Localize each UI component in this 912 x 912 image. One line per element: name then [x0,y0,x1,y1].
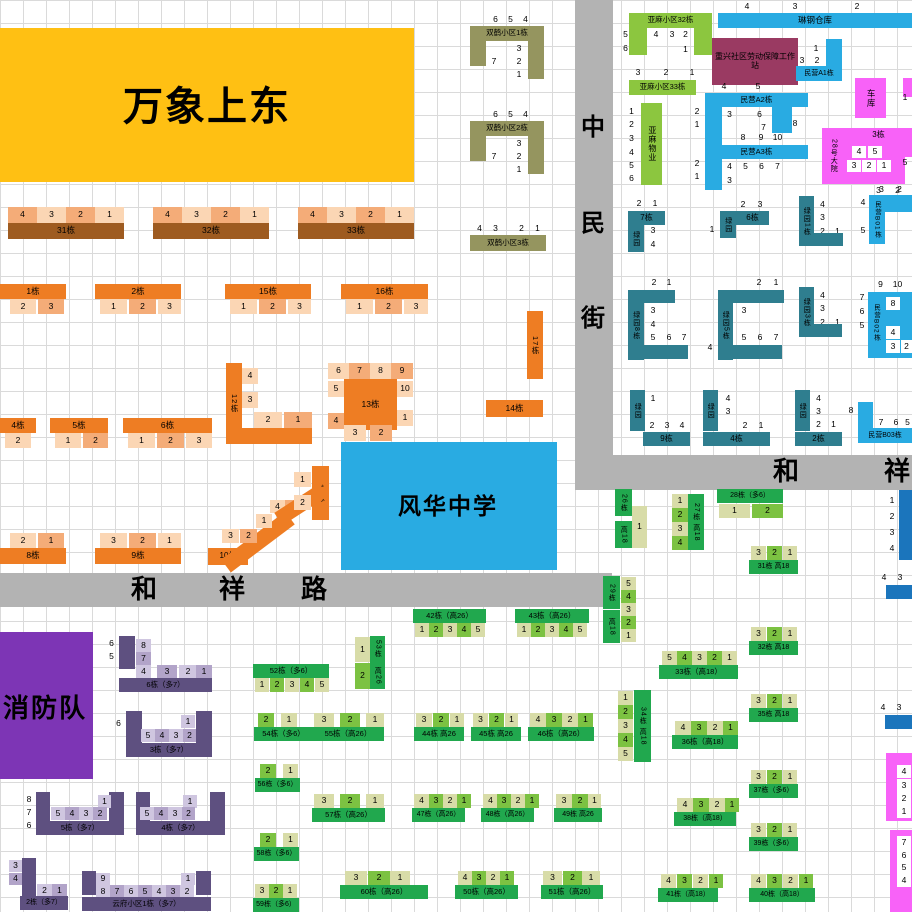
building-yunfu-1-label: 1 [181,873,195,885]
building-purple-5-label: 4 [65,807,79,820]
building-32-label: 3 [182,207,211,223]
building-purple-6-label: 8 [136,639,151,652]
building-lvyuan-9-label: 2 [645,419,659,432]
building-lvyuan-5-shape [733,290,784,303]
building-58-label: 1 [283,833,298,847]
building-yama-32-shape [629,28,647,55]
building-12-label: 2 [254,412,282,428]
building-lvyuan-7-label: 绿园 [628,225,644,252]
building-edge-blue-1-label: 4 [886,543,898,555]
building-purple-5-label: 8 [23,794,35,806]
building-51-label: 51栋（高26） [541,885,603,899]
building-lvyuan-6-label: 1 [706,224,718,236]
building-46-label: 1 [578,713,593,727]
building-purple-4-label: 2 [182,807,195,820]
building-60-label: 60栋（高26） [340,885,428,899]
building-lvyuan-3-label: 3 [816,303,829,315]
building-56-label: 56栋（多6） [255,778,300,792]
building-31-east-label: 1 [783,546,797,560]
building-44-label: 44栋 高26 [414,727,464,741]
building-minying-b02-label: 7 [856,292,868,304]
building-52-label: 2 [270,678,284,692]
building-lvyuan-4-label: 1 [754,419,768,432]
building-garage-label: 1 [899,92,911,104]
building-35-label: 35栋 高18 [749,708,798,722]
road-hexiang-street-label: 和 [770,457,804,487]
building-shuanghe-1-shape [528,41,544,79]
building-50-label: 4 [458,871,472,885]
road-hexiang-road-label: 路 [298,575,332,605]
building-13-label: 9 [391,363,413,379]
building-33-east-label: 5 [662,651,677,665]
building-yama-33-label: 亚麻小区33栋 [629,80,696,95]
building-minying-a1-label: 3 [795,54,809,67]
building-34-label: 34栋 高18 [634,690,651,762]
building-15-label: 15栋 [225,284,311,299]
building-yama-32-label: 1 [678,43,693,57]
building-edge-blue-1-shape [899,490,912,560]
building-shuanghe-1-label: 4 [518,13,533,26]
building-6-label: 6栋 [123,418,212,433]
building-59-label: 3 [255,884,269,898]
building-purple-4-label: 4 [154,807,168,820]
building-16-label: 3 [404,299,428,314]
building-edge-pink-1-label: 4 [897,765,911,778]
building-yama-33-label: 2 [659,66,673,79]
building-60-label: 3 [345,871,367,885]
building-purple-6-label: 2 [179,665,197,678]
building-minying-a2-label: 5 [751,81,765,93]
building-54-label: 54栋（多6） [254,727,313,741]
building-yunfu-1-shape [82,871,96,895]
building-57-label: 3 [314,794,334,808]
building-purple-3-label: 6 [112,718,125,730]
building-39-label: 3 [751,823,766,837]
building-9-label: 2 [129,533,156,548]
building-45-label: 2 [489,713,504,727]
building-33-east-label: 33栋（高18） [659,665,738,679]
building-32-label: 1 [240,207,269,223]
building-29-label: 2 [621,616,636,629]
building-purple-2-shape [22,858,36,896]
building-37-label: 37栋（多6） [749,784,798,798]
building-lvyuan-8-label: 5 [646,331,660,344]
building-31-label: 3 [37,207,66,223]
building-shuanghe-2-label: 5 [503,108,518,121]
building-shuanghe-1-label: 3 [511,42,527,55]
building-minying-a2-label: 4 [717,81,731,93]
building-shuanghe-1-label: 7 [487,55,501,68]
building-lvyuan-5-label: 4 [704,342,716,354]
building-minying-a3-label: 3 [722,174,737,187]
building-38-label: 4 [677,798,693,812]
building-43-label: 1 [517,623,531,637]
building-2-label: 2 [129,299,156,314]
building-purple-3-label: 1 [181,715,195,728]
building-shuanghe-2-label: 1 [511,163,527,176]
building-minying-b02-label: 2 [901,340,912,353]
building-13-label: 8 [370,363,391,379]
building-37-label: 3 [751,770,766,784]
building-11-label: 2 [294,495,311,510]
building-lvyuan-7-label: 7栋 [628,211,665,225]
building-13-label: 10 [397,381,413,397]
building-47-label: 1 [457,794,471,808]
building-59-label: 2 [269,884,283,898]
building-purple-5-label: 5 [51,807,65,820]
building-43-label: 4 [559,623,573,637]
building-lvyuan-8-shape [644,290,675,303]
building-lvyuan-6-label: 3 [753,199,767,211]
building-lvyuan-5-label: 3 [737,304,751,317]
building-purple-6-label: 6栋（多7） [119,678,212,692]
building-lvyuan-8-label: 4 [646,318,660,331]
map-canvas: 中民街和祥路和祥万象上东风华中学消防队432131栋432132栋432133栋… [0,0,912,912]
building-31-label: 2 [66,207,95,223]
building-28-label: 1 [719,504,750,518]
building-4-label: 2 [5,433,31,448]
building-purple-5-label: 6 [23,820,35,832]
building-purple-6-shape [119,636,135,669]
building-44-label: 3 [416,713,432,727]
building-9-label: 9栋 [95,548,181,564]
building-lvyuan-4-label: 绿园 [703,390,718,431]
building-purple-4-label: 3 [168,807,182,820]
building-yard28-3-label: 28号大院 [822,128,845,184]
building-minying-a1-label: 民营A1栋 [796,66,842,81]
building-purple-2-label: 3 [9,860,22,872]
building-43-label: 5 [573,623,587,637]
building-58-label: 2 [260,833,276,847]
building-43-label: 3 [545,623,559,637]
building-yard28-3-shape [903,143,912,157]
building-lvyuan-2-label: 4 [812,393,825,405]
building-edge-blue-3-shape [885,715,912,729]
road-hexiang-street-shape [575,455,912,490]
building-35-label: 2 [767,694,782,708]
building-lvyuan-9-label: 3 [660,419,674,432]
building-yama-property-label: 1 [625,105,638,118]
building-29-label: 5 [621,577,636,590]
building-41-label: 4 [661,874,676,888]
building-39-label: 2 [767,823,782,837]
building-minying-a3-shape [705,159,722,190]
building-15-label: 3 [288,299,311,314]
building-55-label: 2 [340,713,360,727]
building-34-label: 1 [618,691,633,705]
building-minying-a3-label: 4 [722,160,737,173]
building-lvyuan-3-label: 绿园3栋 [799,287,814,337]
building-yama-32-label: 2 [678,28,693,42]
building-48-label: 4 [483,794,498,808]
building-36-label: 36栋（高18） [672,735,738,749]
building-45-label: 1 [505,713,518,727]
building-33-east-label: 2 [707,651,722,665]
building-40-label: 2 [783,874,798,888]
building-36-label: 4 [675,721,691,735]
building-41-label: 1 [709,874,723,888]
building-yard28-3-label: 1 [877,160,891,172]
building-purple-6-label: 3 [157,665,177,678]
building-shuanghe-1-label: 5 [503,13,518,26]
building-52-label: 1 [255,678,269,692]
building-yama-property-label: 3 [625,132,638,145]
building-11-label: 1 [294,472,311,487]
building-lvyuan-7-label: 2 [632,198,646,210]
building-shuanghe-2-label: 6 [488,108,503,121]
building-13-label: 6 [328,363,349,379]
building-15-label: 1 [230,299,257,314]
building-50-label: 1 [500,871,514,885]
building-52-label: 4 [300,678,314,692]
building-53-label: 2 [355,663,370,689]
building-48-label: 48栋（高26） [481,808,534,822]
building-34-label: 2 [618,705,633,719]
building-edge-pink-2-label: 4 [897,874,911,887]
building-57-label: 1 [366,794,384,808]
area-wanxiang-shangdong-label: 万象上东 [57,78,357,136]
building-56-label: 1 [283,764,298,778]
building-edge-blue-3-label: 4 [877,702,889,714]
building-garage-label: 车库 [855,78,886,118]
building-53-label: 53栋 [370,636,385,662]
building-lvyuan-9-label: 9栋 [643,432,690,446]
building-40-label: 3 [767,874,782,888]
building-34-label: 3 [618,719,633,733]
building-35-label: 1 [783,694,797,708]
building-46-label: 2 [562,713,578,727]
building-shuanghe-2-label: 3 [511,137,527,150]
building-29-label: 29栋 [603,576,620,609]
building-purple-5-shape [109,792,124,823]
building-36-label: 3 [691,721,707,735]
building-purple-3-label: 3栋（多7） [126,743,212,757]
building-59-label: 59栋（多6） [253,898,299,912]
building-purple-5-shape [36,792,50,823]
building-lvyuan-1-label: 4 [816,199,829,211]
building-minying-a2-label: 1 [691,119,703,131]
building-27-label: 2 [672,508,688,522]
building-steel-warehouse-label: 2 [850,1,864,13]
floating-number-8-label: 8 [845,405,857,417]
building-minying-b02-label: 6 [856,306,868,318]
building-6-label: 3 [186,433,212,448]
building-yama-32-label: 4 [648,28,664,42]
building-51-label: 2 [563,871,582,885]
building-minying-a3-label: 6 [754,160,769,173]
building-6-label: 2 [157,433,184,448]
building-36-label: 2 [707,721,723,735]
building-10-label: 3 [222,529,239,543]
building-lvyuan-7-label: 4 [646,238,660,251]
building-minying-a3-label: 10 [769,132,786,144]
building-lvyuan-8-label: 6 [662,331,676,344]
building-2-label: 1 [100,299,127,314]
building-shuanghe-3-label: 双鹤小区3栋 [470,235,546,251]
building-purple-5-label: 7 [23,807,35,819]
building-29-label: 1 [621,629,636,642]
building-14-label: 14栋 [486,400,543,417]
building-shuanghe-2-label: 2 [511,150,527,163]
building-5-label: 5栋 [50,418,108,433]
road-zhongmin-street-shape [575,0,613,490]
building-36-label: 1 [723,721,738,735]
building-42-label: 1 [415,623,429,637]
building-minying-a2-label: 3 [722,108,737,121]
building-58-label: 58栋（多6） [254,847,299,861]
building-6-label: 1 [128,433,155,448]
road-zhongmin-street-label: 街 [578,303,610,333]
building-yama-32-label: 亚麻小区32栋 [629,13,712,28]
building-lvyuan-4-label: 4栋 [703,432,770,446]
building-16-label: 1 [346,299,373,314]
building-28-label: 28栋（多6） [717,489,783,503]
building-shuanghe-2-shape [470,136,486,161]
building-minying-a2-label: 6 [752,108,767,121]
building-minying-a3-label: 民营A3栋 [705,145,808,159]
building-44-label: 1 [450,713,464,727]
building-46-label: 4 [530,713,546,727]
building-lvyuan-9-label: 绿园 [630,390,645,431]
building-8-label: 1 [38,533,64,548]
building-17-label: 17栋 [527,311,543,379]
building-56-label: 2 [260,764,276,778]
building-27-label: 1 [672,494,688,508]
building-lvyuan-8-label: 7 [677,331,691,344]
building-9-label: 3 [100,533,127,548]
building-49-label: 49栋 高26 [554,808,602,822]
building-33-east-label: 4 [677,651,692,665]
building-purple-6-label: 4 [136,665,151,678]
building-purple-6-label: 6 [105,638,118,650]
building-shuanghe-3-label: 1 [530,222,545,235]
building-54-label: 2 [258,713,274,727]
building-lvyuan-2-label: 1 [827,419,840,431]
building-purple-5-label: 3 [79,807,93,820]
building-minying-b01-label: 民营B01栋 [869,195,885,244]
building-8-label: 8栋 [0,548,66,564]
building-steel-warehouse-label: 琳钢仓库 [718,13,912,28]
building-42-label: 2 [429,623,443,637]
building-27-label: 3 [672,522,688,536]
building-28-label: 2 [752,504,783,518]
building-5-label: 2 [83,433,108,448]
building-edge-pink-2-label: 5 [897,861,911,874]
building-minying-b02-label: 3 [886,340,900,353]
building-44-label: 2 [433,713,449,727]
building-lvyuan-2-label: 3 [812,406,825,418]
building-42-label: 42栋（高26） [413,609,486,623]
building-26-label: 1 [632,506,647,548]
area-fire-brigade-label: 消防队 [0,692,90,726]
road-zhongmin-street-label: 民 [578,208,610,238]
building-lvyuan-9-label: 4 [675,419,689,432]
building-40-label: 40栋（高18） [749,888,815,902]
building-50-label: 3 [472,871,486,885]
building-yama-property-label: 亚麻物业 [641,103,662,185]
building-community-workstation-label: 重兴社区劳动保障工作站 [712,38,798,85]
building-yard28-3-label: 3 [847,160,861,172]
building-lvyuan-4-label: 4 [721,393,735,405]
building-purple-4-shape [210,792,225,823]
building-43-label: 2 [531,623,545,637]
building-purple-2-label: 2栋（多7） [20,896,68,910]
building-12-label: 12栋 [226,363,242,444]
building-34-label: 4 [618,733,633,747]
building-29-label: 4 [621,590,636,603]
building-12-shape [242,428,312,444]
building-32-east-label: 1 [783,627,797,641]
building-2-label: 3 [158,299,181,314]
building-yard28-3-label: 3栋 [845,128,912,143]
building-purple-4-label: 5 [140,807,154,820]
building-shuanghe-2-label: 7 [487,150,501,163]
building-31-east-label: 3 [751,546,766,560]
building-46-label: 3 [546,713,562,727]
building-lvyuan-5-shape [733,345,782,359]
building-26-label: 26栋 [615,489,632,516]
building-edge-blue-1-label: 3 [886,527,898,539]
building-57-label: 57栋（高26） [312,808,385,822]
building-53-label: 1 [355,637,370,662]
building-10-label: 2 [240,529,257,543]
area-fenghua-middle-school-label: 风华中学 [380,490,516,524]
building-49-label: 3 [556,794,572,808]
building-minying-b01-shape [884,195,912,212]
building-48-label: 3 [497,794,511,808]
building-52-label: 5 [315,678,329,692]
building-42-label: 5 [471,623,485,637]
building-55-label: 3 [314,713,334,727]
building-lvyuan-5-label: 绿园5栋 [718,290,733,360]
building-33-east-label: 1 [722,651,737,665]
building-yama-property-label: 5 [625,159,638,172]
building-lvyuan-8-label: 1 [662,277,676,289]
building-33-label: 1 [385,207,414,223]
building-35-label: 3 [751,694,766,708]
building-12-label: 3 [242,392,258,408]
building-9-label: 1 [158,533,181,548]
building-37-label: 1 [783,770,797,784]
building-49-label: 2 [572,794,588,808]
building-1-label: 2 [10,299,36,314]
building-minying-a3-label: 7 [770,160,785,173]
building-16-label: 2 [375,299,402,314]
building-purple-6-label: 7 [136,652,151,665]
building-purple-3-shape [126,711,142,743]
building-minying-a3-label: 5 [738,160,753,173]
building-32-label: 2 [211,207,240,223]
road-hexiang-street-label: 祥 [884,457,912,487]
building-minying-b02-label: 民营B02栋 [868,294,884,352]
building-55-label: 1 [366,713,384,727]
building-yard28-3-label: 2 [862,160,876,172]
building-13-label: 13栋 [344,379,397,430]
building-38-label: 38栋（高18） [674,812,736,826]
building-37-label: 2 [767,770,782,784]
building-41-label: 41栋（高18） [658,888,718,902]
building-lvyuan-8-label: 绿园8栋 [628,290,644,360]
building-41-label: 3 [677,874,692,888]
building-yama-32-shape [694,28,712,55]
building-lvyuan-8-label: 3 [646,304,660,317]
building-lvyuan-9-label: 1 [646,393,660,405]
building-5-label: 1 [55,433,81,448]
building-38-label: 2 [709,798,725,812]
building-minying-b01-label: 4 [857,197,869,209]
road-zhongmin-street-label: 中 [578,112,610,142]
building-minying-b02-label: 4 [886,326,900,339]
